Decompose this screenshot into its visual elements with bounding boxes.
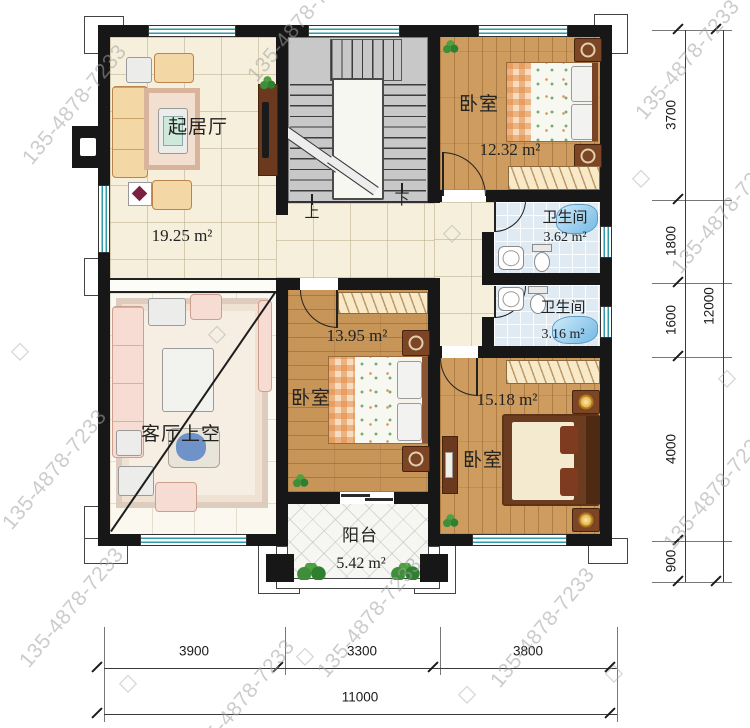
wall-bedroom-mid-bottom-b [394, 492, 434, 504]
watermark-diamond-icon: ◇ [208, 319, 226, 347]
nightstand-bottom-1 [572, 390, 600, 414]
window-top-stairs [308, 25, 400, 37]
wall-h3-a [428, 346, 442, 358]
label-bedroom-bottom: 卧室 [451, 451, 515, 472]
window-left-living [98, 185, 110, 253]
nightstand-bottom-2 [572, 508, 600, 532]
wardrobe-middle [338, 292, 428, 314]
wall-v2-top [428, 37, 440, 203]
window-top-living [148, 25, 236, 37]
wall-v1-bottom [276, 278, 288, 546]
window-bottom-bedroom [472, 534, 567, 546]
door-leaf-bath-lower [494, 286, 496, 318]
plant-bedroom-top-icon [442, 40, 459, 54]
dim-ext [104, 627, 105, 722]
label-bedroom-top: 卧室 [448, 95, 510, 116]
wall-h1-a [434, 190, 442, 202]
label-bathroom-upper: 卫生间 [526, 210, 604, 227]
balcony-slider-leaf-b [365, 498, 393, 501]
label-bathroom-lower-area: 3.16 m² [524, 327, 602, 342]
wall-h2 [482, 273, 612, 285]
label-living-void: 客厅上空 [134, 425, 228, 446]
bed-bottom [502, 414, 600, 506]
sink-lower [498, 287, 524, 311]
side-table [126, 57, 152, 83]
label-balcony: 阳台 [328, 527, 392, 546]
balcony-column-left [266, 554, 294, 582]
wall-bath-left-a [482, 232, 494, 273]
watermark-text: 135-4878-7233 [631, 0, 745, 125]
dim-right-2: 1600 [664, 305, 679, 335]
void-chair-top-b [190, 294, 222, 320]
dim-ext [652, 582, 732, 583]
dim-ext [652, 357, 732, 358]
dim-line-right-segments [685, 30, 686, 582]
tv-living [262, 102, 269, 158]
nightstand-middle-1 [402, 330, 430, 356]
dim-bottom-0: 3900 [179, 644, 209, 659]
watermark-diamond-icon: ◇ [119, 668, 137, 696]
armchair-bottom [152, 180, 192, 210]
label-bedroom-bottom-area: 15.18 m² [458, 391, 556, 410]
floor-plan: 起居厅 19.25 m² 卧室 12.32 m² 卫生间 3.62 m² 卫生间… [0, 0, 750, 728]
label-bathroom-upper-area: 3.62 m² [526, 230, 604, 245]
dim-right-3: 4000 [664, 434, 679, 464]
dim-right-total: 12000 [702, 287, 717, 325]
window-top-bedroom [478, 25, 568, 37]
bed-middle [328, 356, 428, 444]
label-bedroom-middle-area: 13.95 m² [308, 327, 406, 346]
wall-h3-b [478, 346, 612, 358]
wall-bedroom-mid-bottom-a [282, 492, 340, 504]
wall-right [600, 25, 612, 546]
wall-bath-left-b [482, 317, 494, 346]
plant-bedroom-middle-icon [292, 474, 309, 488]
wall-bedroom-mid-top-a [282, 278, 300, 290]
dim-ext [652, 283, 732, 284]
watermark-diamond-icon: ◇ [458, 679, 476, 707]
nightstand-top-1 [574, 38, 602, 62]
label-bathroom-lower: 卫生间 [524, 300, 602, 317]
watermark-diamond-icon: ◇ [443, 218, 461, 246]
armchair-top [154, 53, 194, 83]
dim-line-bottom-segments [104, 668, 617, 669]
watermark-diamond-icon: ◇ [296, 641, 314, 669]
label-living-hall-area: 19.25 m² [136, 227, 228, 246]
wardrobe-bottom [506, 360, 600, 384]
label-stairs-down: 下 [390, 192, 414, 209]
chimney-flue [80, 138, 96, 156]
nightstand-top-2 [574, 144, 602, 168]
plant-bedroom-bottom-icon [442, 514, 459, 528]
stairs-up-stem [311, 194, 313, 205]
dim-bottom-total: 11000 [342, 690, 379, 705]
wall-left [98, 25, 110, 546]
label-bedroom-top-area: 12.32 m² [462, 141, 558, 160]
door-leaf-bedroom-top [442, 152, 444, 196]
watermark-text: 135-4878-7233 [15, 543, 129, 673]
stairs-right-flight [384, 84, 426, 200]
wall-v2-bottom [428, 278, 440, 546]
window-bottom-void [140, 534, 247, 546]
wall-bedroom-mid-top-b [338, 278, 434, 290]
sofa-left [112, 86, 148, 178]
toilet-lower-tank [528, 286, 548, 294]
watermark-diamond-icon: ◇ [11, 336, 29, 364]
door-leaf-bath-upper [494, 200, 496, 232]
void-chair-bottom-b [155, 482, 197, 512]
label-living-hall: 起居厅 [160, 118, 236, 139]
watermark-text: 135-4878-7233 [486, 563, 600, 693]
watermark-diamond-icon: ◇ [718, 363, 736, 391]
void-table-center [162, 348, 214, 412]
void-beam [110, 278, 276, 293]
toilet-upper-bowl [534, 252, 550, 272]
nightstand-middle-2 [402, 446, 430, 472]
stairs-top-flight [330, 39, 402, 81]
void-chair-top-a [148, 298, 186, 326]
sink-upper [498, 246, 524, 270]
dim-line-bottom-total [104, 714, 617, 715]
label-bedroom-middle: 卧室 [280, 389, 342, 410]
label-stairs-up: 上 [300, 205, 324, 222]
watermark-diamond-icon: ◇ [605, 658, 623, 686]
balcony-slider-leaf-a [341, 494, 370, 497]
wardrobe-top [508, 166, 600, 190]
bed-top [506, 62, 598, 142]
watermark-diamond-icon: ◇ [632, 163, 650, 191]
watermark-text: 135-4878-7233 [667, 149, 750, 279]
